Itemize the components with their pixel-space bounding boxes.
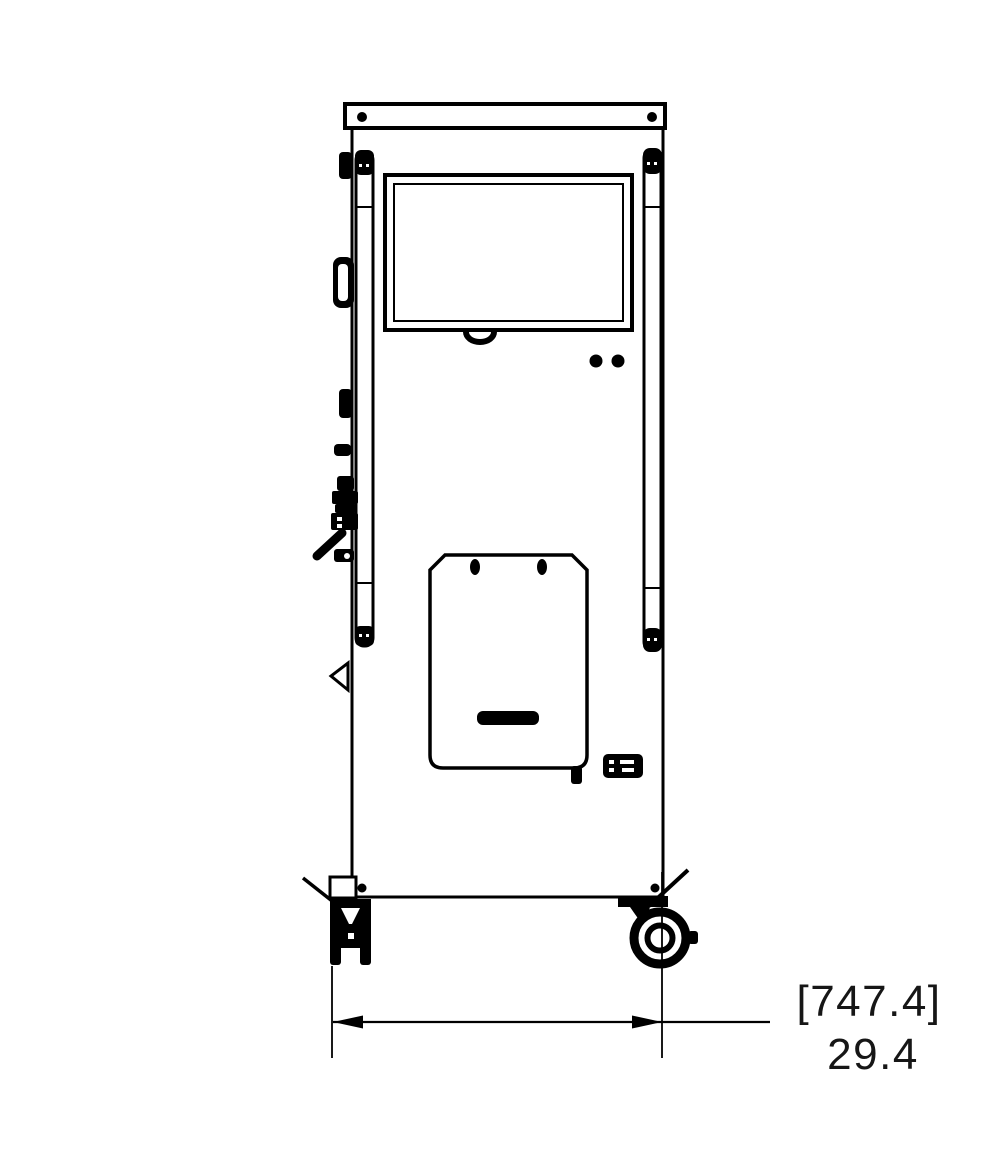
right-caster-axle-nub [688,931,698,944]
top-cap-outline [345,104,665,128]
door-pin-right [537,559,547,575]
screen-panel [394,184,623,321]
tube-clamp-slot [338,264,348,301]
connector-label-mark [620,760,634,764]
valve-block-bottom [334,549,354,562]
right-rail-body [644,150,661,650]
right-caster-mount-bar [618,896,668,907]
front-door-panel [430,555,587,784]
valve-block-mark [337,524,342,528]
left-caster-axle [348,933,354,939]
left-rail-cap-mark [366,634,369,637]
left-caster-bracket [330,877,356,898]
right-rail-cap-mark [654,638,657,641]
right-rail-cap-mark [647,162,650,165]
left-rail-cap-mark [359,164,362,167]
valve-block [335,504,356,513]
connector-label-body [603,754,643,778]
left-accessory-rail [355,150,374,646]
top-cap-screw-left [357,112,367,122]
right-rail-cap-mark [654,162,657,165]
top-cap [345,104,665,128]
left-rail-bottom-cap [355,626,374,646]
connector-label-mark [609,760,614,764]
dimension-arrow-right [632,1016,662,1029]
valve-block [332,491,358,504]
door-bottom-tab [571,766,582,784]
connector-label-mark [609,768,614,772]
rail-peg [334,444,351,456]
right-rail-bottom-cap [643,628,662,652]
valve-block-top [337,476,354,491]
right-caster-wheel-hub [648,926,673,951]
door-pin-left [470,559,480,575]
left-rail-cap-mark [359,634,362,637]
left-caster-bolt [358,884,367,893]
dimension-imperial-label: 29.4 [827,1030,919,1079]
left-rail-top-cap [355,150,374,175]
dimension-metric-label: [747.4] [796,977,941,1026]
rail-knob-top [339,152,352,179]
drawing-surface: [747.4] 29.4 [0,0,988,1164]
right-caster-bolt [651,884,660,893]
valve-pivot [344,553,350,559]
door-logo-bar [477,711,539,725]
top-cap-screw-right [647,112,657,122]
left-rail-cap-mark [366,164,369,167]
right-rail-top-cap [643,148,662,174]
rail-knob-mid [339,389,352,418]
display-screen [385,175,632,345]
right-rail-cap-mark [647,638,650,641]
connector-label-mark [622,768,634,772]
side-hook [331,663,348,690]
left-rail-body [356,152,373,646]
indicator-dot-left [590,355,603,368]
left-caster-fork-angle-left [341,908,349,924]
technical-drawing-front-view: [747.4] 29.4 [0,0,988,1164]
indicator-dot-right [612,355,625,368]
dimension-arrow-left [333,1016,363,1029]
valve-block [331,513,358,530]
left-caster-fork-angle-right [352,908,360,924]
left-caster [303,877,371,965]
door-outline [430,555,587,768]
right-handle-rail [643,148,662,652]
valve-block-mark [337,517,342,521]
connector-label [603,754,643,778]
